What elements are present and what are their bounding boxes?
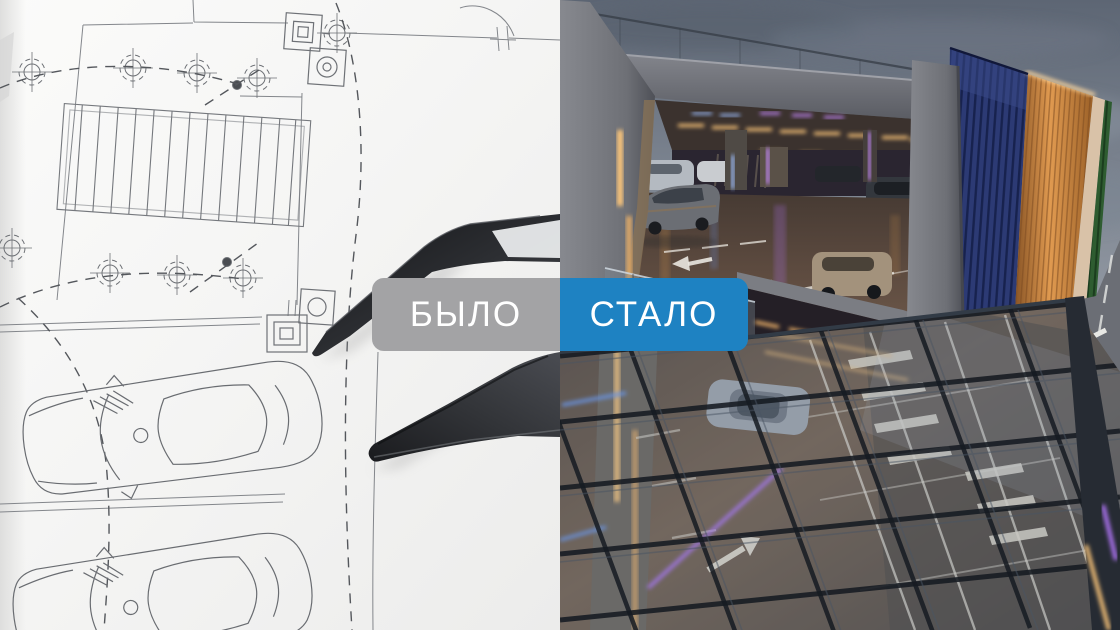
after-badge: СТАЛО (560, 278, 748, 351)
column-led-strip (617, 130, 623, 206)
before-badge-label: БЫЛО (410, 295, 522, 335)
before-after-composite: БЫЛО СТАЛО (0, 0, 1120, 630)
after-badge-label: СТАЛО (590, 295, 719, 335)
before-badge: БЫЛО (372, 278, 560, 351)
